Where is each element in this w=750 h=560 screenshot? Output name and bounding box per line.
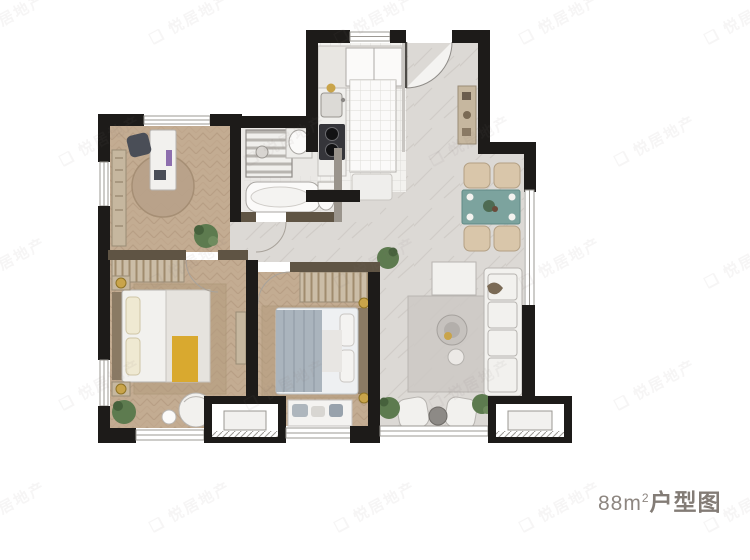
sink-faucet	[341, 98, 345, 102]
wall-entry-right	[478, 30, 490, 152]
coffee-table-gold	[444, 332, 452, 340]
between-stool	[429, 407, 447, 425]
plate-4	[509, 214, 516, 221]
stove-burner-1	[326, 128, 339, 141]
area-exponent: 2	[642, 491, 650, 505]
second-lamp-top	[359, 298, 369, 308]
bathtub-inner	[251, 187, 309, 207]
table-centerpiece2	[492, 206, 498, 212]
lounge-chair-1	[396, 396, 431, 431]
dining-chair-4	[494, 226, 520, 251]
study-desk	[150, 130, 176, 190]
sofa-cushion-2	[488, 302, 517, 328]
ac-unit-right	[508, 411, 552, 430]
ac-left-sill	[212, 431, 278, 437]
master-dresser	[236, 312, 246, 364]
wall-bath-top	[241, 116, 308, 128]
lamp-top	[116, 278, 126, 288]
wall-kitchen-top-right	[390, 30, 406, 43]
second-pillow-2	[340, 350, 354, 382]
plate-3	[467, 214, 474, 221]
wall-right-upper	[524, 142, 536, 192]
second-pillow-1	[340, 314, 354, 346]
desk-laptop	[154, 170, 166, 180]
wall-bath-bottom-right	[286, 212, 338, 222]
wall-niche-right	[334, 148, 342, 222]
seat-cushion-1	[292, 404, 308, 417]
wall-master-top-left	[108, 250, 186, 260]
sofa-cushion-3	[488, 330, 517, 356]
study-shelf	[112, 150, 126, 246]
area-value: 88m	[598, 492, 642, 515]
lamp-bottom	[116, 384, 126, 394]
floorplan-drawing	[0, 0, 750, 560]
second-headboard	[358, 308, 368, 394]
wall-bottom-mid	[350, 426, 370, 443]
seat-cushion-3	[329, 404, 343, 417]
kitchen-sink	[321, 93, 342, 117]
master-pillow-2	[126, 338, 140, 375]
sofa-chaise	[488, 358, 517, 392]
kitchen-gold-item	[327, 84, 336, 93]
wall-second-top	[290, 262, 380, 272]
closet-item3	[462, 128, 471, 136]
second-blanket-blue	[276, 310, 322, 392]
desk-item-purple	[166, 150, 172, 166]
wall-master-top-right	[218, 250, 248, 260]
hall-plant-leaf	[389, 248, 398, 257]
plant-leaf	[380, 398, 389, 407]
wall-bottom-left-corner	[98, 428, 136, 443]
seat-cushion-2	[311, 406, 325, 417]
wall-left-1	[98, 114, 110, 162]
closet-item2	[463, 111, 471, 119]
dining-chair-3	[464, 226, 490, 251]
master-throw-yellow	[172, 336, 198, 382]
master-pillow-1	[126, 297, 140, 334]
wall-study-bath	[230, 116, 241, 222]
island-grid	[350, 80, 396, 172]
second-throw	[322, 330, 342, 372]
shower-drain	[256, 146, 268, 158]
study-plant-leaf2	[208, 236, 218, 246]
plan-type-label: 户型图	[650, 489, 722, 515]
master-headboard	[112, 292, 122, 380]
master-plant-leaf	[113, 401, 123, 411]
ac-unit-left	[224, 411, 266, 430]
second-lamp-bottom	[359, 393, 369, 403]
floorplan-page: { "caption": { "area": "88m", "area_exp"…	[0, 0, 750, 560]
wall-kitchen-left	[306, 40, 318, 152]
plate-1	[467, 194, 474, 201]
master-side-table	[162, 410, 176, 424]
side-stool	[448, 349, 464, 365]
tv-cabinet	[432, 262, 476, 295]
kitchen-foyer-divider	[402, 43, 405, 152]
wall-kitchen-bottom	[306, 190, 360, 202]
wall-left-2	[98, 206, 110, 360]
plate-2	[509, 194, 516, 201]
study-plant-leaf	[194, 225, 204, 235]
wall-kitchen-top-left	[306, 30, 350, 43]
second-wardrobe	[300, 272, 376, 302]
plan-caption: 88m2户型图	[598, 483, 722, 517]
ac-right-sill	[496, 431, 564, 437]
wall-bedrooms-divider	[246, 260, 258, 402]
wall-second-right	[368, 272, 380, 443]
shower-area	[246, 130, 292, 177]
dining-chair-2	[494, 163, 520, 188]
toilet-tank	[318, 182, 335, 190]
closet-item1	[462, 92, 471, 100]
wall-bath-bottom-left	[241, 212, 256, 222]
wall-right-lower	[522, 305, 535, 402]
dining-chair-1	[464, 163, 490, 188]
